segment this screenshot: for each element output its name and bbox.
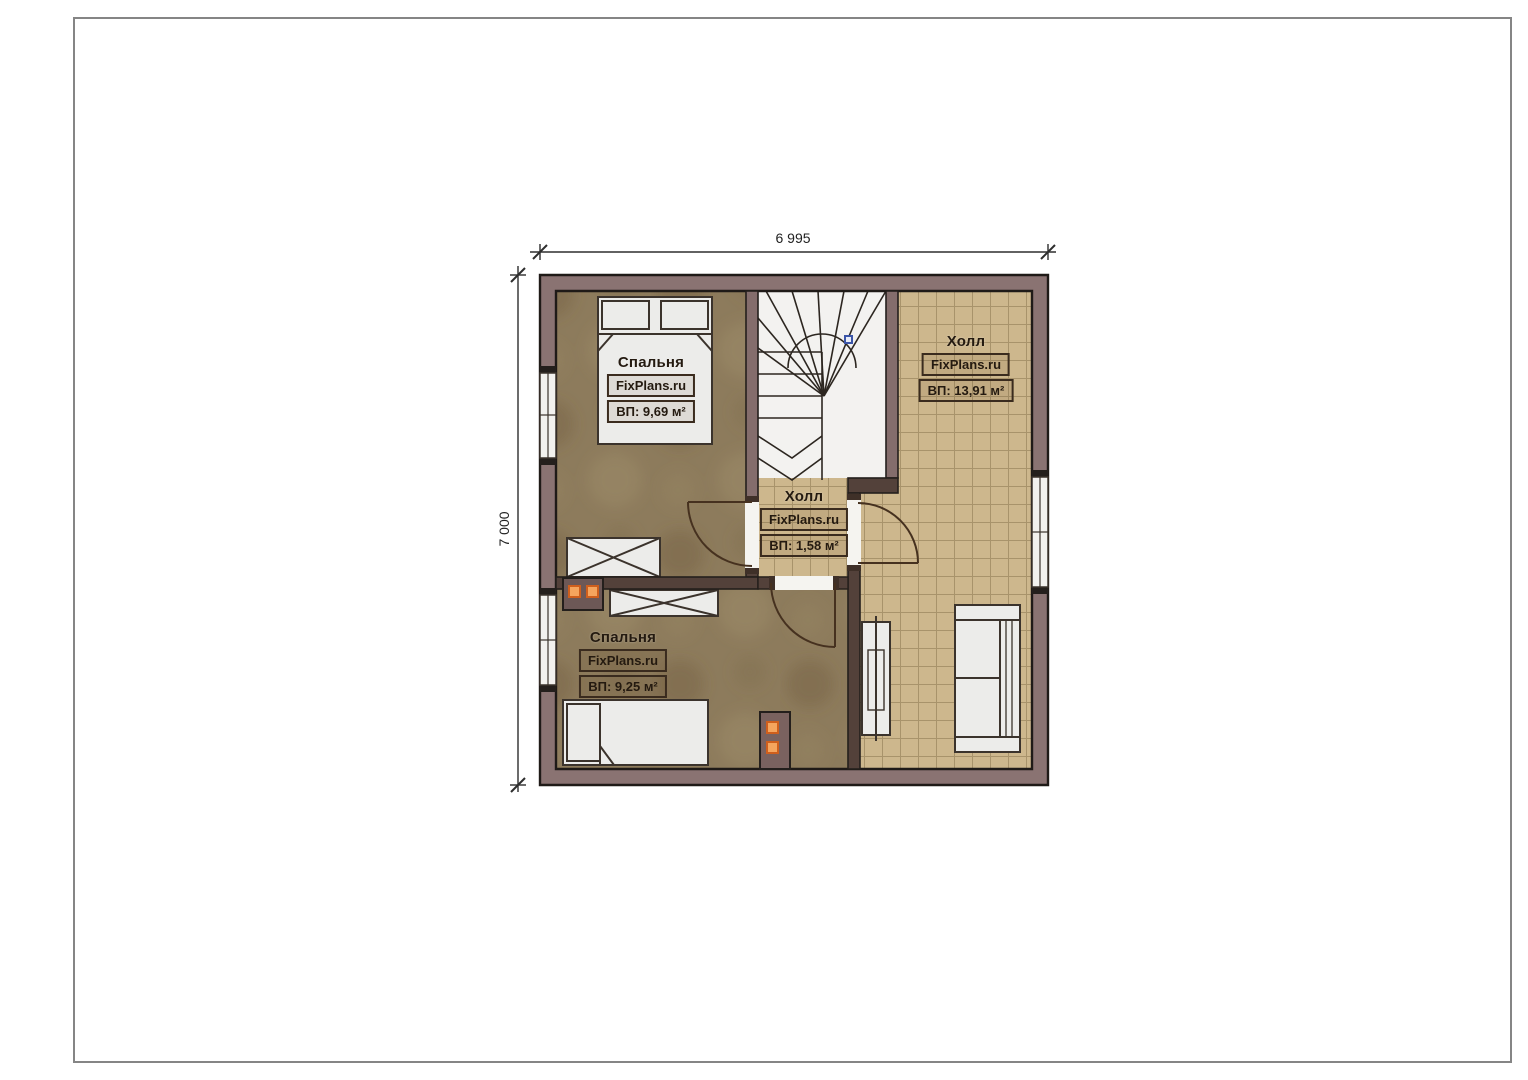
window-left-lower bbox=[540, 588, 556, 692]
watermark-box: FixPlans.ru bbox=[607, 374, 695, 397]
flue-opening bbox=[569, 586, 580, 597]
door-threshold bbox=[775, 576, 833, 590]
dimension-height-label: 7 000 bbox=[496, 511, 512, 546]
door-threshold bbox=[745, 502, 759, 568]
sofa-armrest bbox=[955, 737, 1020, 752]
window-right bbox=[1032, 470, 1048, 594]
room-label-hall-main: Холл FixPlans.ru ВП: 13,91 м² bbox=[919, 333, 1014, 402]
area-box: ВП: 13,91 м² bbox=[919, 379, 1014, 402]
sofa-armrest bbox=[955, 605, 1020, 620]
pillow bbox=[567, 704, 600, 761]
room-label-bedroom-top: Спальня FixPlans.ru ВП: 9,69 м² bbox=[607, 354, 695, 423]
room-name: Холл bbox=[947, 333, 985, 350]
pillow bbox=[602, 301, 649, 329]
stair-marker bbox=[845, 336, 852, 343]
door-jamb bbox=[847, 565, 861, 571]
watermark-box: FixPlans.ru bbox=[760, 508, 848, 531]
single-bed bbox=[563, 700, 708, 765]
chimney-bottom bbox=[760, 712, 790, 769]
flue-opening bbox=[767, 722, 778, 733]
sofa bbox=[955, 605, 1020, 752]
flue-opening bbox=[767, 742, 778, 753]
area-box: ВП: 1,58 м² bbox=[760, 534, 848, 557]
room-name: Холл bbox=[785, 488, 823, 505]
pillow bbox=[661, 301, 708, 329]
watermark-box: FixPlans.ru bbox=[579, 649, 667, 672]
wardrobe bbox=[610, 590, 718, 616]
wall-stairwell-left bbox=[746, 291, 758, 502]
floor-plan-page: 6 995 7 000 Спальня FixPlans.ru ВП: 9,69… bbox=[0, 0, 1528, 1080]
chimney-left bbox=[563, 578, 603, 610]
door-threshold bbox=[847, 500, 861, 565]
room-label-bedroom-bottom: Спальня FixPlans.ru ВП: 9,25 м² bbox=[579, 629, 667, 698]
watermark-box: FixPlans.ru bbox=[922, 353, 1010, 376]
room-label-hall-small: Холл FixPlans.ru ВП: 1,58 м² bbox=[760, 488, 848, 557]
area-box: ВП: 9,25 м² bbox=[579, 675, 667, 698]
mirror-panel bbox=[862, 616, 890, 741]
wardrobe bbox=[567, 538, 660, 577]
room-name: Спальня bbox=[618, 354, 684, 371]
dimension-left bbox=[510, 266, 526, 792]
area-box: ВП: 9,69 м² bbox=[607, 400, 695, 423]
dimension-width-label: 6 995 bbox=[775, 230, 810, 246]
door-jamb bbox=[745, 568, 759, 574]
window-left-upper bbox=[540, 366, 556, 465]
door-jamb bbox=[847, 494, 861, 500]
flue-opening bbox=[587, 586, 598, 597]
dimension-top bbox=[530, 244, 1056, 260]
wall-partition bbox=[848, 565, 860, 769]
wall-stairwell-right bbox=[886, 291, 898, 478]
wall-below-stairwell bbox=[848, 478, 898, 493]
room-name: Спальня bbox=[590, 629, 656, 646]
